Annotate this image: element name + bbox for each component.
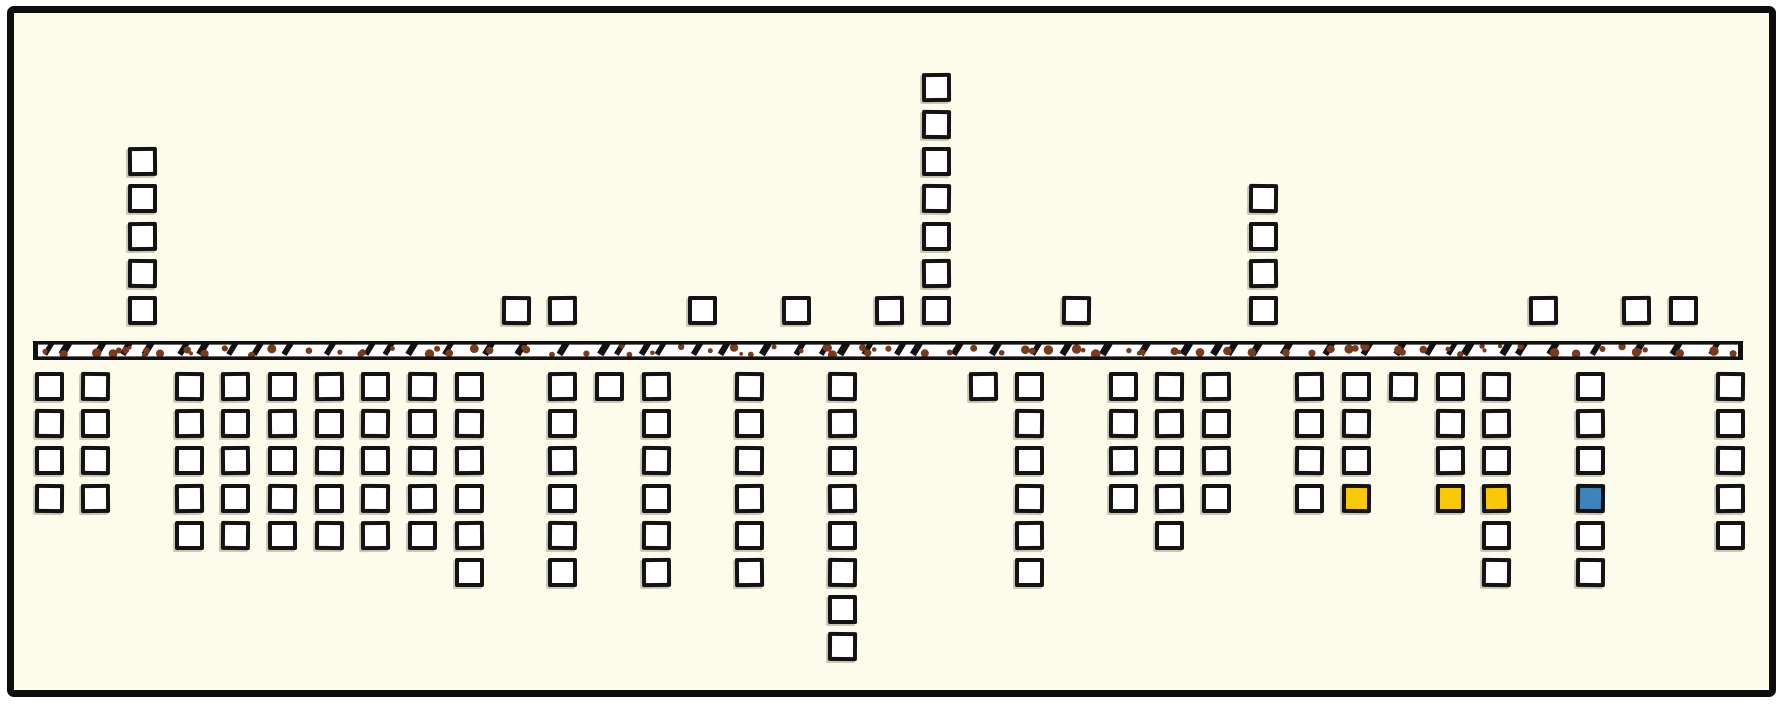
square-below-slot28-row3 <box>1342 446 1371 475</box>
square-below-slot3-row4 <box>174 483 203 512</box>
square-above-slot26-row1 <box>1249 296 1278 325</box>
square-below-slot6-row3 <box>315 446 344 475</box>
square-below-slot13-row3 <box>641 446 670 475</box>
square-below-slot31-row2 <box>1482 409 1511 438</box>
square-below-slot0-row4 <box>34 484 63 513</box>
square-below-slot13-row2 <box>642 409 671 438</box>
square-below-slot5-row4 <box>268 483 297 512</box>
yellow-square-below-slot28-row4 <box>1342 484 1371 513</box>
square-below-slot24-row5 <box>1155 521 1184 550</box>
square-below-slot15-row2 <box>735 409 764 438</box>
square-above-slot14-row1 <box>688 296 717 325</box>
square-below-slot33-row6 <box>1576 558 1605 587</box>
square-below-slot11-row3 <box>548 446 577 475</box>
square-below-slot21-row4 <box>1015 484 1044 513</box>
square-below-slot31-row3 <box>1482 446 1511 475</box>
square-below-slot13-row5 <box>642 521 671 550</box>
square-above-slot19-row5 <box>922 147 951 176</box>
square-below-slot9-row1 <box>455 372 484 401</box>
square-below-slot11-row1 <box>548 372 577 401</box>
square-below-slot29-row1 <box>1389 372 1418 401</box>
square-below-slot7-row2 <box>361 409 390 438</box>
square-above-slot19-row1 <box>922 296 951 325</box>
axis-band-texture <box>33 341 1743 360</box>
square-below-slot23-row2 <box>1109 409 1138 438</box>
square-below-slot17-row5 <box>828 521 857 550</box>
yellow-square-below-slot30-row4 <box>1435 484 1464 513</box>
blue-square-below-slot33-row4 <box>1575 483 1604 512</box>
square-below-slot9-row3 <box>455 446 484 475</box>
square-below-slot17-row7 <box>828 595 857 624</box>
square-below-slot4-row4 <box>221 484 250 513</box>
square-below-slot21-row2 <box>1015 409 1044 438</box>
square-above-slot2-row1 <box>128 296 157 325</box>
square-below-slot11-row2 <box>548 409 577 438</box>
square-below-slot36-row4 <box>1716 484 1745 513</box>
square-above-slot2-row3 <box>128 222 157 251</box>
square-below-slot31-row6 <box>1482 558 1511 587</box>
square-below-slot17-row1 <box>828 372 857 401</box>
pictogram-board <box>0 0 1783 704</box>
square-below-slot36-row1 <box>1716 372 1745 401</box>
square-below-slot28-row1 <box>1342 372 1371 401</box>
square-above-slot26-row4 <box>1249 184 1278 213</box>
square-above-slot19-row7 <box>922 73 951 102</box>
square-below-slot30-row2 <box>1435 409 1464 438</box>
square-above-slot22-row1 <box>1062 296 1091 325</box>
square-below-slot24-row3 <box>1155 446 1184 475</box>
square-above-slot18-row1 <box>875 296 904 325</box>
square-below-slot24-row4 <box>1155 483 1184 512</box>
square-below-slot36-row3 <box>1716 446 1745 475</box>
square-below-slot0-row3 <box>34 446 63 475</box>
square-below-slot23-row1 <box>1109 372 1138 401</box>
square-below-slot6-row1 <box>315 372 344 401</box>
square-below-slot4-row3 <box>221 446 250 475</box>
square-below-slot20-row1 <box>968 372 997 401</box>
square-below-slot6-row4 <box>315 484 344 513</box>
square-below-slot5-row2 <box>268 409 297 438</box>
square-below-slot24-row1 <box>1155 372 1184 401</box>
square-below-slot30-row1 <box>1435 372 1464 401</box>
square-below-slot25-row4 <box>1202 484 1231 513</box>
square-below-slot8-row5 <box>408 521 437 550</box>
square-below-slot7-row5 <box>361 521 390 550</box>
square-below-slot27-row2 <box>1295 409 1324 438</box>
square-below-slot1-row4 <box>81 484 110 513</box>
square-above-slot19-row3 <box>922 222 951 251</box>
square-below-slot6-row2 <box>315 409 344 438</box>
axis-band <box>33 341 1743 360</box>
square-below-slot4-row1 <box>221 372 250 401</box>
square-above-slot32-row1 <box>1529 296 1558 325</box>
square-below-slot17-row3 <box>828 446 857 475</box>
square-below-slot31-row5 <box>1482 521 1511 550</box>
square-below-slot23-row4 <box>1109 484 1138 513</box>
square-above-slot19-row6 <box>922 110 951 139</box>
square-below-slot9-row2 <box>455 409 484 438</box>
square-below-slot3-row5 <box>175 521 204 550</box>
square-below-slot17-row6 <box>828 558 857 587</box>
square-below-slot15-row4 <box>735 484 764 513</box>
square-below-slot31-row1 <box>1482 372 1511 401</box>
square-below-slot27-row1 <box>1295 372 1324 401</box>
square-above-slot2-row2 <box>128 259 157 288</box>
square-below-slot36-row5 <box>1716 521 1745 550</box>
square-below-slot13-row4 <box>642 484 671 513</box>
square-below-slot3-row1 <box>175 372 204 401</box>
square-below-slot11-row6 <box>548 558 577 587</box>
square-above-slot2-row5 <box>128 147 157 176</box>
square-below-slot0-row2 <box>34 409 63 438</box>
square-below-slot1-row1 <box>81 372 110 401</box>
square-below-slot27-row4 <box>1295 484 1324 513</box>
square-below-slot6-row5 <box>315 521 344 550</box>
square-above-slot34-row1 <box>1622 296 1651 325</box>
screenshot-root <box>0 0 1783 704</box>
square-above-slot16-row1 <box>782 296 811 325</box>
square-below-slot13-row1 <box>641 372 670 401</box>
square-below-slot36-row2 <box>1716 409 1745 438</box>
square-below-slot12-row1 <box>595 372 624 401</box>
square-below-slot15-row1 <box>735 372 764 401</box>
square-below-slot25-row1 <box>1202 372 1231 401</box>
square-below-slot5-row5 <box>268 521 297 550</box>
square-below-slot28-row2 <box>1342 409 1371 438</box>
square-below-slot0-row1 <box>35 372 64 401</box>
square-below-slot4-row5 <box>221 521 250 550</box>
square-below-slot17-row2 <box>828 409 857 438</box>
square-below-slot33-row1 <box>1576 372 1605 401</box>
square-above-slot26-row2 <box>1249 259 1278 288</box>
square-above-slot19-row4 <box>922 184 951 213</box>
square-below-slot21-row6 <box>1015 558 1044 587</box>
square-below-slot21-row3 <box>1015 446 1044 475</box>
square-below-slot7-row3 <box>361 446 390 475</box>
square-below-slot33-row2 <box>1575 409 1604 438</box>
square-below-slot15-row5 <box>735 521 764 550</box>
square-below-slot9-row5 <box>455 521 484 550</box>
square-below-slot8-row2 <box>408 409 437 438</box>
square-below-slot25-row3 <box>1202 446 1231 475</box>
square-below-slot23-row3 <box>1109 446 1138 475</box>
square-below-slot4-row2 <box>221 409 250 438</box>
square-below-slot30-row3 <box>1435 446 1464 475</box>
square-below-slot9-row6 <box>455 558 484 587</box>
square-below-slot24-row2 <box>1155 409 1184 438</box>
square-below-slot25-row2 <box>1202 409 1231 438</box>
square-below-slot21-row5 <box>1015 521 1044 550</box>
square-below-slot5-row3 <box>268 446 297 475</box>
square-above-slot26-row3 <box>1249 222 1278 251</box>
square-below-slot1-row3 <box>81 446 110 475</box>
square-below-slot8-row4 <box>408 484 437 513</box>
square-below-slot7-row1 <box>361 372 390 401</box>
square-above-slot11-row1 <box>548 296 577 325</box>
square-above-slot2-row4 <box>128 184 157 213</box>
square-below-slot17-row8 <box>828 632 857 661</box>
square-below-slot1-row2 <box>81 409 110 438</box>
square-below-slot3-row2 <box>175 409 204 438</box>
square-below-slot15-row3 <box>735 446 764 475</box>
square-below-slot21-row1 <box>1015 372 1044 401</box>
square-below-slot27-row3 <box>1295 446 1324 475</box>
square-below-slot17-row4 <box>828 483 857 512</box>
square-above-slot35-row1 <box>1669 296 1698 325</box>
square-below-slot3-row3 <box>175 446 204 475</box>
square-below-slot15-row6 <box>735 558 764 587</box>
square-below-slot11-row5 <box>548 521 577 550</box>
square-above-slot19-row2 <box>922 259 951 288</box>
square-below-slot33-row3 <box>1576 446 1605 475</box>
square-above-slot10-row1 <box>501 296 530 325</box>
square-below-slot9-row4 <box>455 484 484 513</box>
square-below-slot13-row6 <box>642 558 671 587</box>
square-below-slot8-row1 <box>408 372 437 401</box>
square-below-slot5-row1 <box>268 372 297 401</box>
square-below-slot8-row3 <box>408 446 437 475</box>
square-below-slot11-row4 <box>548 484 577 513</box>
square-below-slot33-row5 <box>1576 521 1605 550</box>
yellow-square-below-slot31-row4 <box>1482 483 1511 512</box>
square-below-slot7-row4 <box>361 484 390 513</box>
